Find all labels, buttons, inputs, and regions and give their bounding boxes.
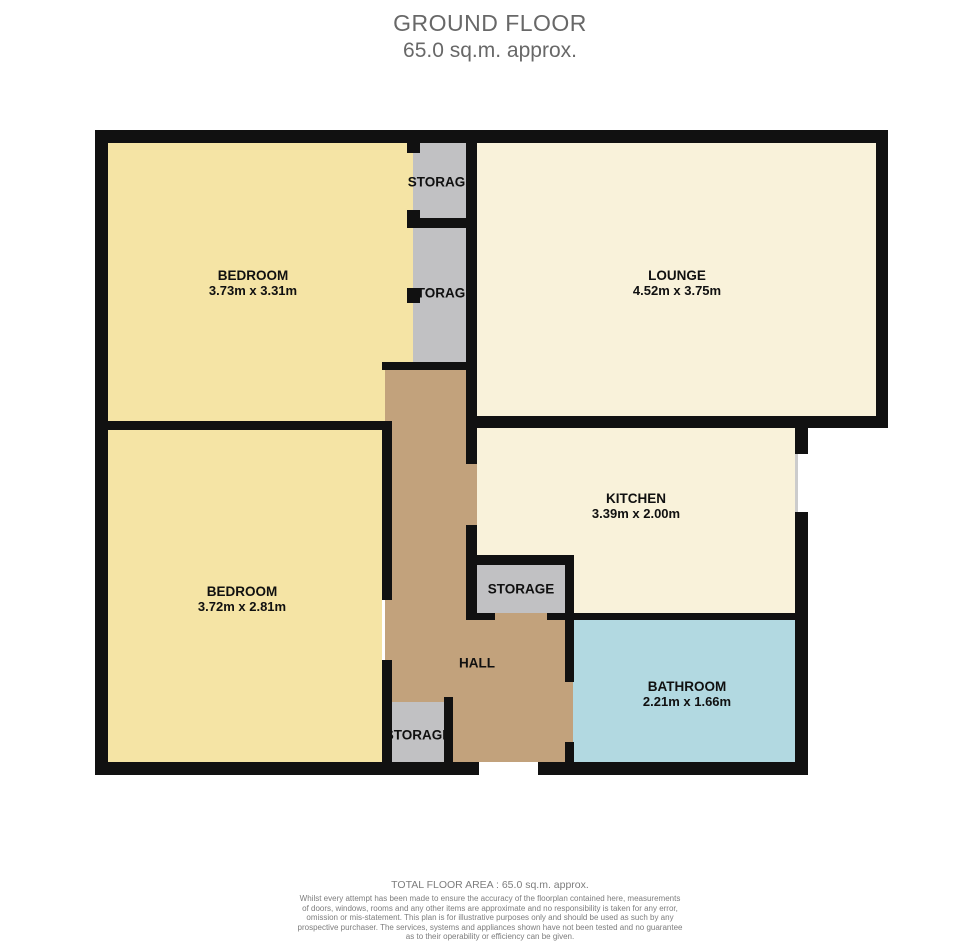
total-floor-area: TOTAL FLOOR AREA : 65.0 sq.m. approx. — [0, 879, 980, 891]
room-name: BEDROOM — [198, 584, 286, 599]
room-name: HALL — [459, 656, 495, 671]
disclaimer-line: Whilst every attempt has been made to en… — [0, 894, 980, 904]
bedroom-top-floor — [108, 143, 413, 362]
bedroom-top-label: BEDROOM 3.73m x 3.31m — [209, 268, 297, 298]
disclaimer-line: as to their operability or efficiency ca… — [0, 932, 980, 942]
room-name: STORAGE — [408, 175, 475, 190]
wall-lounge-right — [876, 130, 888, 428]
room-name: LOUNGE — [633, 268, 721, 283]
wall-storage-hall-right — [444, 697, 453, 762]
bedroom-bottom-label: BEDROOM 3.72m x 2.81m — [198, 584, 286, 614]
footer: TOTAL FLOOR AREA : 65.0 sq.m. approx. Wh… — [0, 879, 980, 944]
kitchen-label: KITCHEN 3.39m x 2.00m — [592, 491, 680, 521]
wall-kitchen-right-lower — [795, 512, 808, 775]
wall-kitchen-left-stub — [466, 428, 477, 464]
room-name: STORAGE — [488, 582, 555, 597]
hall-label: HALL — [459, 656, 495, 671]
wall-outer-bottom-left — [95, 762, 479, 775]
wall-storage-mid-left — [466, 565, 477, 620]
storage-hall-label: STORAGE — [385, 728, 452, 743]
wall-bedroom2-hall-lower — [382, 660, 392, 762]
bedroom-top-floor-lower — [108, 362, 385, 421]
wall-outer-top — [95, 130, 888, 143]
room-name: KITCHEN — [592, 491, 680, 506]
room-dims: 4.52m x 3.75m — [633, 283, 721, 298]
bathroom-label: BATHROOM 2.21m x 1.66m — [643, 679, 731, 709]
room-name: BATHROOM — [643, 679, 731, 694]
wall-storage-mid-top — [466, 555, 565, 565]
wall-bedroom2-hall-upper — [382, 421, 392, 600]
room-dims: 3.73m x 3.31m — [209, 283, 297, 298]
disclaimer-line: of doors, windows, rooms and any other i… — [0, 904, 980, 914]
wall-inter-bedroom — [95, 421, 390, 430]
wall-storage-divider — [407, 218, 468, 228]
door-jamb-storage-lower — [407, 288, 420, 303]
wall-storage-mid-stub-left — [477, 613, 495, 620]
room-dims: 2.21m x 1.66m — [643, 694, 731, 709]
wall-bathroom-left-stub — [565, 742, 574, 762]
door-jamb-storage-top — [407, 140, 420, 153]
storage-top-label: STORAGE — [408, 175, 475, 190]
wall-outer-bottom-right — [538, 762, 808, 775]
disclaimer-line: omission or mis-statement. This plan is … — [0, 913, 980, 923]
hall-floor-lower — [477, 613, 565, 762]
room-dims: 3.72m x 2.81m — [198, 599, 286, 614]
room-name: STORAGE — [385, 728, 452, 743]
wall-lounge-bottom — [466, 416, 888, 428]
wall-lounge-left — [466, 143, 477, 416]
storage-mid-label: STORAGE — [488, 582, 555, 597]
disclaimer-line: prospective purchaser. The services, sys… — [0, 923, 980, 933]
lounge-label: LOUNGE 4.52m x 3.75m — [633, 268, 721, 298]
kitchen-window — [795, 454, 798, 512]
wall-storage-column-bottom — [382, 362, 477, 370]
wall-kitchen-bottom — [565, 613, 795, 620]
wall-outer-left — [95, 130, 108, 775]
floorplan-page: GROUND FLOOR 65.0 sq.m. approx. — [0, 0, 980, 944]
floor-plan: BEDROOM 3.73m x 3.31m LOUNGE 4.52m x 3.7… — [0, 0, 980, 944]
room-name: BEDROOM — [209, 268, 297, 283]
room-dims: 3.39m x 2.00m — [592, 506, 680, 521]
wall-kitchen-right-stub — [795, 428, 808, 454]
wall-storage-mid-stub-right — [547, 613, 565, 620]
